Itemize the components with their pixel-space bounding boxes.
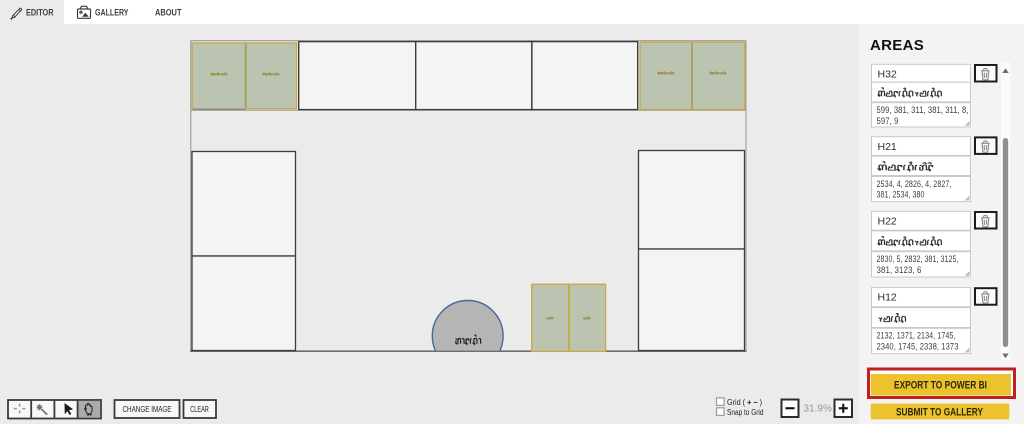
svg-text:2830, 5, 2832, 381, 3125,: 2830, 5, 2832, 381, 3125, [877, 254, 959, 264]
svg-text:ABOUT: ABOUT [155, 7, 182, 18]
svg-text:381, 3123, 6: 381, 3123, 6 [877, 265, 922, 275]
svg-text:599, 381, 311, 381, 311, 8,: 599, 381, 311, 381, 311, 8, [877, 105, 969, 115]
svg-text:597, 9: 597, 9 [877, 116, 899, 126]
svg-text:Snap to Grid: Snap to Grid [727, 408, 764, 417]
svg-text:31.9%: 31.9% [804, 404, 832, 415]
svg-text:H32: H32 [878, 69, 897, 81]
svg-text:381, 2534, 380: 381, 2534, 380 [877, 190, 925, 200]
svg-text:CLEAR: CLEAR [190, 404, 209, 414]
svg-text:H21: H21 [878, 141, 897, 153]
svg-text:EXPORT TO POWER BI: EXPORT TO POWER BI [894, 380, 987, 392]
svg-text:Grid ( + − ): Grid ( + − ) [727, 398, 762, 407]
svg-text:2534, 4, 2826, 4, 2827,: 2534, 4, 2826, 4, 2827, [877, 179, 952, 189]
svg-text:AREAS: AREAS [870, 37, 924, 54]
svg-text:GALLERY: GALLERY [95, 7, 129, 18]
svg-text:SUBMIT TO GALLERY: SUBMIT TO GALLERY [896, 406, 983, 418]
svg-text:H12: H12 [878, 292, 897, 304]
svg-text:H22: H22 [878, 216, 897, 228]
svg-text:EDITOR: EDITOR [26, 7, 54, 18]
svg-text:CHANGE IMAGE: CHANGE IMAGE [123, 404, 172, 414]
svg-text:2340, 1745, 2338, 1373: 2340, 1745, 2338, 1373 [877, 342, 959, 352]
svg-text:2132, 1371, 2134, 1745,: 2132, 1371, 2134, 1745, [877, 331, 956, 341]
